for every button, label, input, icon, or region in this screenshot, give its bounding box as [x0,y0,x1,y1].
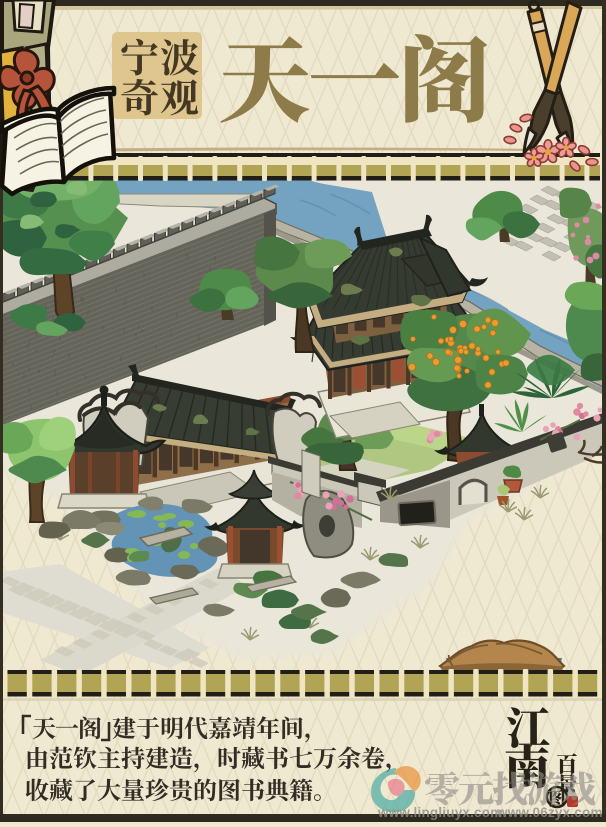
svg-text:www.06zyx.com: www.06zyx.com [496,805,603,820]
svg-text:www.lingliuyx.com: www.lingliuyx.com [377,805,502,820]
